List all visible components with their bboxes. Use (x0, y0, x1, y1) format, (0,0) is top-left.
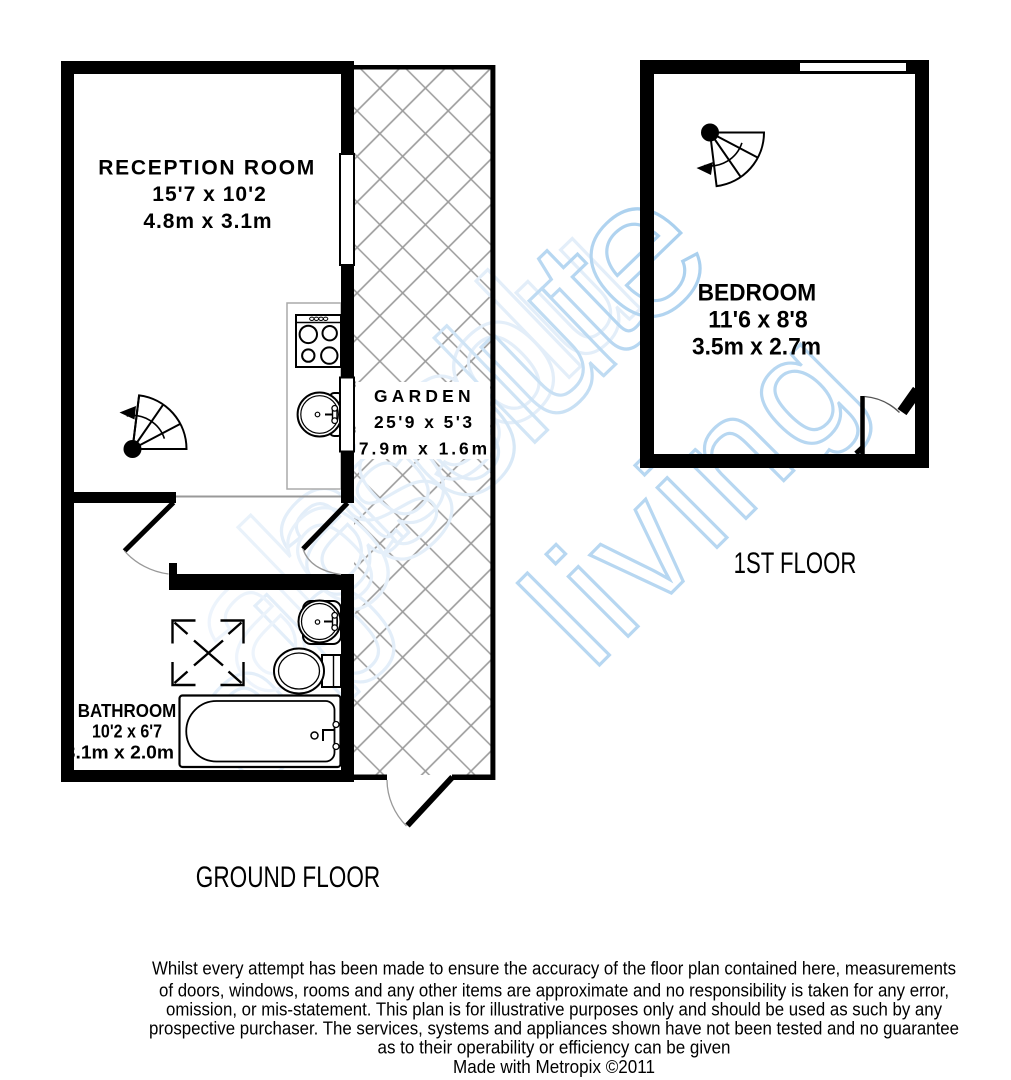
svg-text:10'2 x 6'7: 10'2 x 6'7 (92, 722, 162, 742)
svg-text:Made with Metropix ©2011: Made with Metropix ©2011 (453, 1056, 655, 1077)
svg-text:4.8m x 3.1m: 4.8m x 3.1m (143, 210, 271, 233)
svg-text:3.1m x 2.0m: 3.1m x 2.0m (65, 743, 174, 763)
svg-text:Whilst every attempt has been: Whilst every attempt has been made to en… (152, 958, 956, 979)
svg-text:GROUND FLOOR: GROUND FLOOR (196, 861, 380, 894)
svg-text:BATHROOM: BATHROOM (78, 701, 177, 721)
svg-text:1ST FLOOR: 1ST FLOOR (734, 547, 857, 580)
svg-text:11'6 x 8'8: 11'6 x 8'8 (708, 307, 808, 334)
svg-text:RECEPTION ROOM: RECEPTION ROOM (98, 157, 314, 180)
svg-text:3.5m x 2.7m: 3.5m x 2.7m (692, 334, 821, 361)
svg-text:as to their operability or eff: as to their operability or efficiency ca… (378, 1037, 731, 1058)
svg-text:omission, or mis-statement. Th: omission, or mis-statement. This plan is… (166, 999, 943, 1020)
svg-text:15'7 x 10'2: 15'7 x 10'2 (152, 183, 266, 206)
svg-text:of doors, windows, rooms and a: of doors, windows, rooms and any other i… (159, 980, 949, 1001)
svg-text:BEDROOM: BEDROOM (698, 279, 817, 306)
svg-text:prospective purchaser. The ser: prospective purchaser. The services, sys… (149, 1018, 959, 1039)
